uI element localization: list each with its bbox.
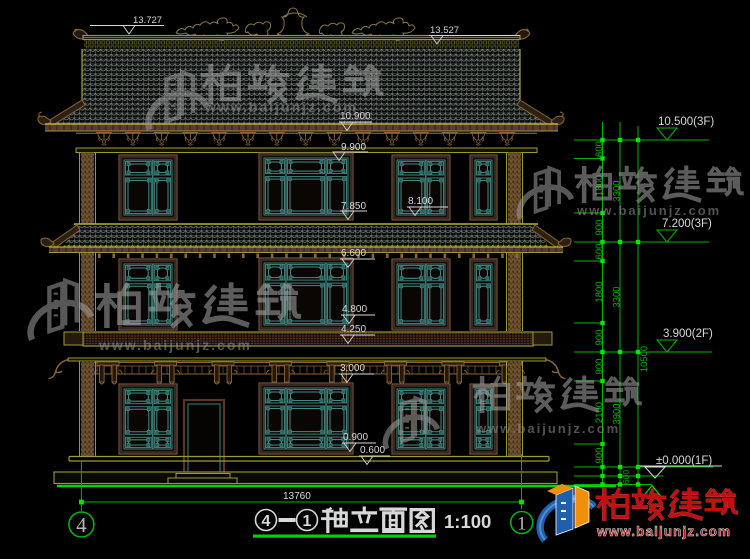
svg-text:600: 600 — [594, 244, 605, 260]
svg-text:6.600: 6.600 — [341, 248, 366, 259]
svg-text:13760: 13760 — [283, 491, 311, 502]
svg-text:4: 4 — [262, 513, 271, 530]
svg-text:1: 1 — [303, 513, 312, 530]
svg-text:±0.000(1F): ±0.000(1F) — [656, 455, 712, 467]
svg-text:1:100: 1:100 — [444, 511, 491, 532]
svg-text:4: 4 — [76, 513, 87, 537]
svg-text:600: 600 — [621, 470, 631, 484]
svg-text:www.baijunjz.com: www.baijunjz.com — [576, 203, 721, 218]
svg-text:10500: 10500 — [639, 346, 650, 372]
svg-text:13.727: 13.727 — [133, 15, 162, 26]
svg-text:3300: 3300 — [612, 180, 623, 201]
svg-text:900: 900 — [594, 330, 605, 346]
svg-text:10.500(3F): 10.500(3F) — [658, 116, 714, 128]
svg-text:900: 900 — [594, 359, 605, 375]
svg-text:3300: 3300 — [612, 286, 623, 307]
svg-text:7.850: 7.850 — [341, 201, 366, 212]
svg-text:3.000: 3.000 — [340, 363, 365, 374]
svg-text:0.900: 0.900 — [343, 432, 368, 443]
svg-text:4.800: 4.800 — [342, 304, 367, 315]
svg-text:www.baijunjz.com: www.baijunjz.com — [475, 421, 620, 436]
svg-text:1: 1 — [517, 514, 527, 535]
svg-text:1800: 1800 — [594, 281, 605, 302]
svg-text:0.600: 0.600 — [360, 445, 385, 456]
svg-text:9.900: 9.900 — [341, 142, 366, 153]
svg-text:8.100: 8.100 — [408, 196, 433, 207]
svg-text:www.baijunjz.com: www.baijunjz.com — [98, 337, 252, 353]
svg-text:www.baijunjz.com: www.baijunjz.com — [204, 99, 358, 115]
svg-text:13.527: 13.527 — [430, 25, 459, 36]
svg-text:4.250: 4.250 — [341, 324, 366, 335]
svg-text:600: 600 — [594, 141, 605, 157]
svg-text:900: 900 — [594, 448, 605, 464]
svg-text:2100: 2100 — [594, 402, 605, 423]
svg-text:3.900(2F): 3.900(2F) — [663, 328, 713, 340]
svg-text:900: 900 — [594, 220, 605, 236]
svg-text:7.200(3F): 7.200(3F) — [662, 218, 712, 230]
svg-text:www.baijunjz.com: www.baijunjz.com — [596, 524, 731, 539]
